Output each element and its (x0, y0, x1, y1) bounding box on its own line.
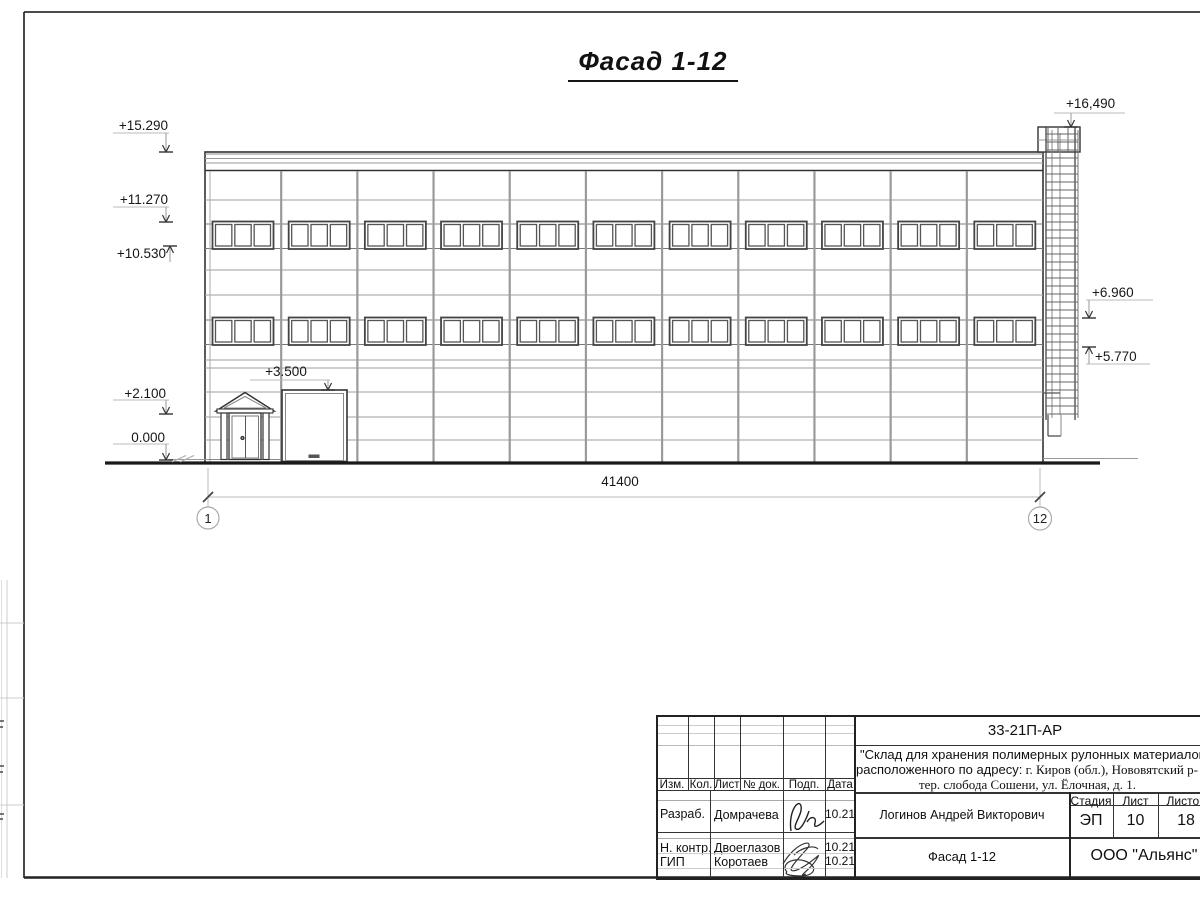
drawing-sheet: { "sheet": { "view_title": "Фасад 1-12 "… (0, 0, 1200, 900)
project-desc-line1: "Склад для хранения полимерных рулонных … (860, 747, 1200, 762)
level-label-2100: +2.100 (98, 386, 166, 401)
row-name-gip: Коротаев (714, 855, 768, 869)
doc-number: 33-21П-АР (855, 722, 1195, 739)
approver-name: Логинов Андрей Викторович (855, 808, 1069, 822)
level-label-5770: +5.770 (1095, 349, 1137, 364)
level-label-15290: +15.290 (100, 118, 168, 133)
margin-stamp (0, 580, 24, 878)
desc-line2-serif: г. Киров (обл.), Нововятский р- (1022, 762, 1198, 777)
level-label-3500: +3.500 (246, 364, 326, 379)
row-date-razrab: 10.21 (825, 807, 855, 821)
row-name-razrab: Домрачева (714, 808, 779, 822)
level-label-11270: +11.270 (100, 192, 168, 207)
project-desc-line3: тер. слобода Сошени, ул. Ёлочная, д. 1. (855, 777, 1200, 793)
stage-value: ЭП (1069, 812, 1113, 830)
gate-door (282, 390, 347, 462)
level-label-16490: +16,490 (1066, 96, 1115, 111)
row-role-razrab: Разраб. (660, 807, 705, 821)
project-desc-line2: расположенного по адресу: г. Киров (обл.… (856, 762, 1198, 778)
company-name: ООО "Альянс" (1069, 847, 1200, 865)
sheet-number: 10 (1113, 812, 1158, 830)
level-label-0000: 0.000 (97, 430, 165, 445)
grid-axis-12: 12 (1028, 511, 1052, 526)
drawing-title-cell: Фасад 1-12 (855, 849, 1069, 864)
desc-line2-sans: расположенного по адресу: (856, 762, 1022, 777)
fire-escape-ladder (1038, 127, 1080, 436)
grid-axis-1: 1 (197, 511, 219, 526)
sheets-total: 18 (1158, 812, 1200, 830)
title-block: 33-21П-АР "Склад для хранения полимерных… (656, 715, 1200, 880)
view-title: Фасад 1-12 (568, 46, 738, 82)
row-role-gip: ГИП (660, 855, 685, 869)
level-label-10530: +10.530 (98, 246, 166, 261)
dimension-total: 41400 (560, 474, 680, 489)
level-label-6960: +6.960 (1092, 285, 1134, 300)
